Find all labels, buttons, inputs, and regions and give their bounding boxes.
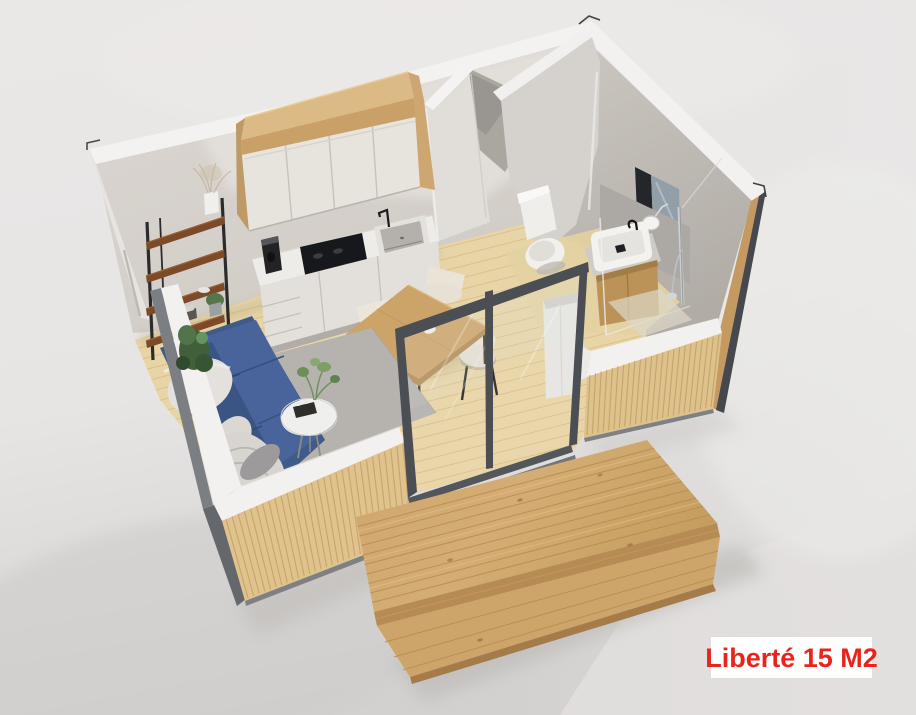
svg-text:Liberté 15 M2: Liberté 15 M2 bbox=[705, 643, 878, 673]
